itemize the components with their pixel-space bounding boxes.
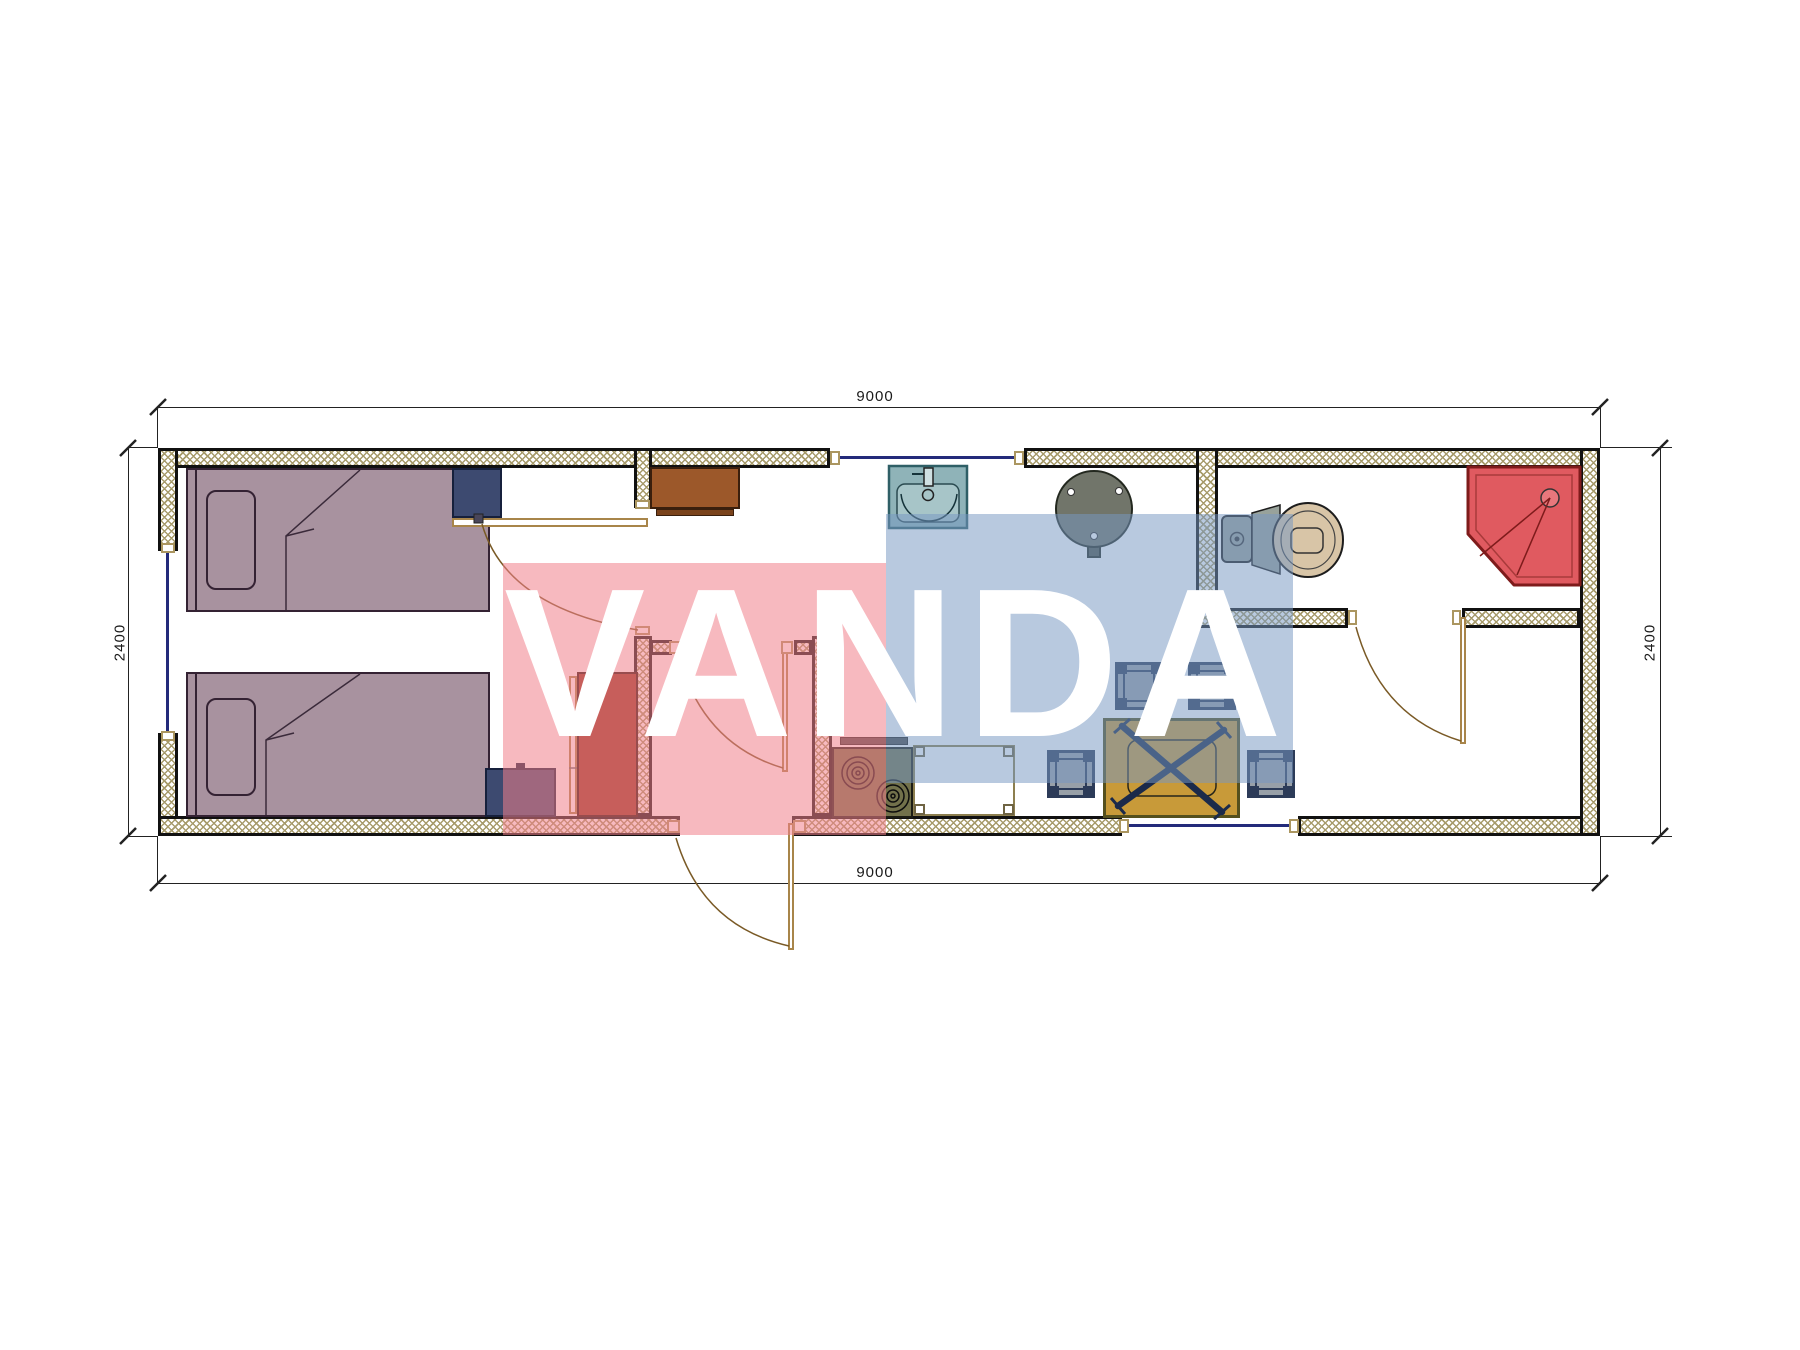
window-bottom [1129,824,1289,827]
shower-icon [1468,467,1580,585]
pillow [206,490,256,590]
table-dot [1115,487,1123,495]
window-frame-cap [161,731,175,741]
wall-bathroom-right [1462,608,1580,628]
stool-post [1248,786,1259,797]
door-jamb-cap [1348,610,1357,625]
window-frame-cap [1119,819,1129,833]
table-dot [1067,488,1075,496]
wall-bottom-right [1298,816,1600,836]
counter-post [1003,804,1014,815]
stool-post [1083,786,1094,797]
entry-door-leaf [788,823,794,950]
pillow [206,698,256,796]
counter-post [914,804,925,815]
floor-plan-canvas: 9000 9000 2400 2400 [0,0,1800,1350]
bathroom-door-arc [1356,627,1461,741]
wall-right [1580,448,1600,836]
extension-line [1600,407,1601,448]
dimension-label-top: 9000 [825,388,925,405]
dimension-label-bottom: 9000 [825,864,925,881]
extension-line [1600,836,1672,837]
bed-top [186,468,490,612]
dimension-line-top [158,407,1600,408]
watermark-text: VANDA [503,548,1293,778]
stool-post [1048,786,1059,797]
dimension-label-left: 2400 [112,593,129,693]
extension-line [1600,836,1601,884]
dimension-line-bottom [158,883,1600,884]
extension-line [157,407,158,448]
window-left [166,553,169,731]
closet-front-line [452,518,648,527]
entry-door-arc [676,838,789,946]
extension-line [128,836,158,837]
window-top [840,456,1014,459]
window-frame-cap [161,543,175,553]
extension-line [1600,447,1672,448]
window-frame-cap [1289,819,1299,833]
wall-top-left [158,448,830,468]
bathroom-door-leaf [1460,617,1466,744]
nightstand-top [452,468,502,518]
door-jamb-cap [1452,610,1461,625]
window-frame-cap [830,451,840,465]
wall-left-upper [158,448,178,551]
stool-post [1283,786,1294,797]
window-frame-cap [1014,451,1024,465]
bed-headboard-line [195,470,197,610]
dresser [650,467,740,509]
dimension-label-right: 2400 [1642,593,1659,693]
bed-bottom [186,672,490,817]
extension-line [128,447,158,448]
dimension-line-right [1660,448,1661,836]
extension-line [157,836,158,884]
door-jamb-cap [635,500,650,509]
bed-headboard-line [195,674,197,815]
wall-top-right [1024,448,1600,468]
dresser-drawer-strip [656,509,734,516]
